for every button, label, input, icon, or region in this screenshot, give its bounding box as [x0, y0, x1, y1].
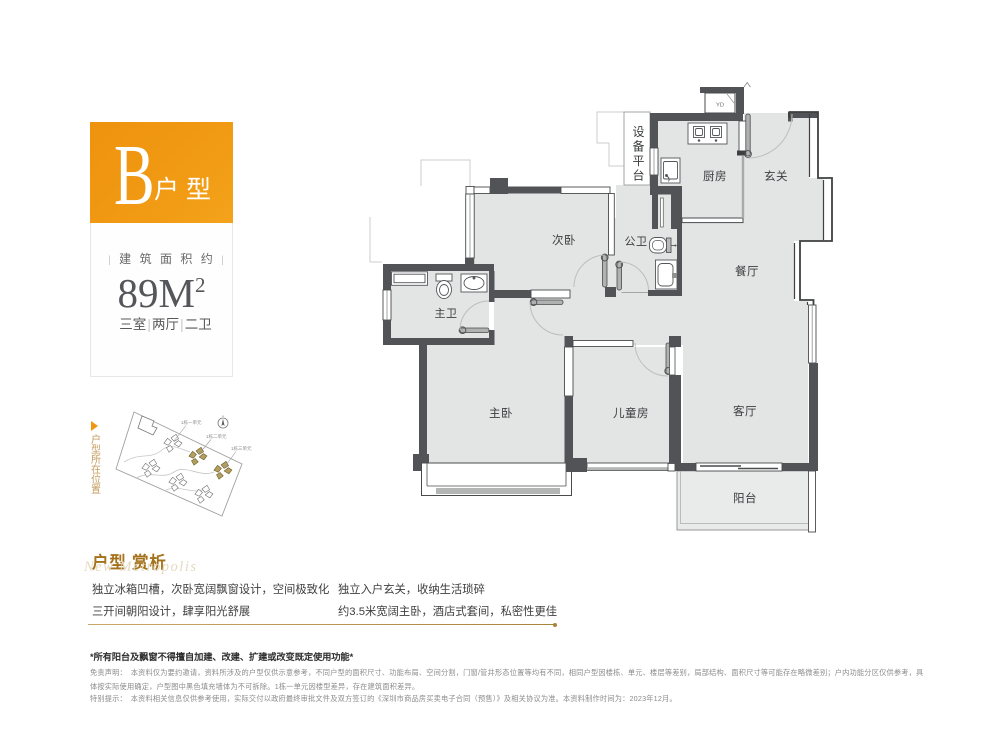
svg-text:1栋一单元: 1栋一单元 — [181, 419, 202, 426]
svg-text:儿童房: 儿童房 — [613, 406, 649, 420]
svg-text:1栋二单元: 1栋二单元 — [206, 433, 227, 440]
svg-text:公卫: 公卫 — [625, 236, 648, 248]
svg-text:备: 备 — [632, 140, 644, 154]
svg-text:平: 平 — [632, 154, 644, 168]
svg-text:客厅: 客厅 — [733, 404, 757, 418]
svg-text:次卧: 次卧 — [552, 233, 576, 247]
svg-text:玄关: 玄关 — [764, 169, 788, 183]
svg-text:阳台: 阳台 — [733, 491, 757, 505]
svg-text:1栋三单元: 1栋三单元 — [231, 445, 252, 452]
svg-text:设: 设 — [632, 125, 644, 139]
svg-text:台: 台 — [632, 168, 644, 183]
svg-text:主卫: 主卫 — [435, 307, 458, 320]
svg-text:餐厅: 餐厅 — [735, 264, 759, 278]
svg-text:主卧: 主卧 — [489, 407, 513, 420]
svg-text:YD: YD — [716, 103, 724, 109]
svg-text:厨房: 厨房 — [703, 170, 727, 183]
